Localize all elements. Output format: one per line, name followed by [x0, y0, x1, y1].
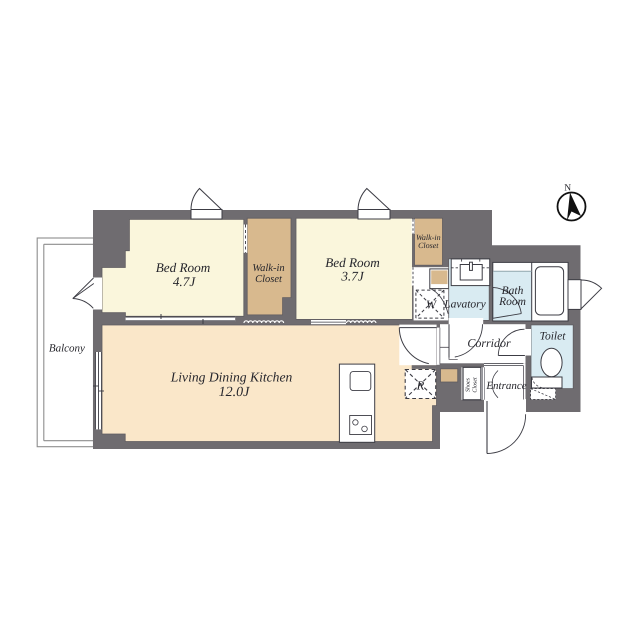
svg-text:Shoes: Shoes — [465, 377, 472, 392]
svg-text:Toilet: Toilet — [540, 331, 567, 343]
svg-text:Bed Room: Bed Room — [156, 260, 211, 275]
svg-text:Entrance: Entrance — [485, 380, 526, 392]
svg-text:3.7J: 3.7J — [340, 269, 364, 284]
svg-text:Balcony: Balcony — [49, 343, 85, 355]
svg-text:R: R — [416, 379, 425, 393]
svg-text:4.7J: 4.7J — [173, 274, 196, 289]
svg-text:Closet: Closet — [418, 241, 439, 250]
svg-text:N: N — [564, 184, 571, 194]
svg-text:Living Dining Kitchen: Living Dining Kitchen — [170, 370, 293, 385]
svg-text:Closet: Closet — [255, 274, 283, 285]
svg-text:Lavatory: Lavatory — [443, 299, 486, 311]
svg-text:Walk-in: Walk-in — [252, 263, 284, 274]
svg-text:W: W — [426, 298, 437, 312]
svg-text:Room: Room — [498, 296, 526, 308]
svg-text:Closet: Closet — [472, 377, 479, 393]
svg-text:Corridor: Corridor — [467, 336, 511, 350]
svg-text:12.0J: 12.0J — [219, 385, 251, 400]
